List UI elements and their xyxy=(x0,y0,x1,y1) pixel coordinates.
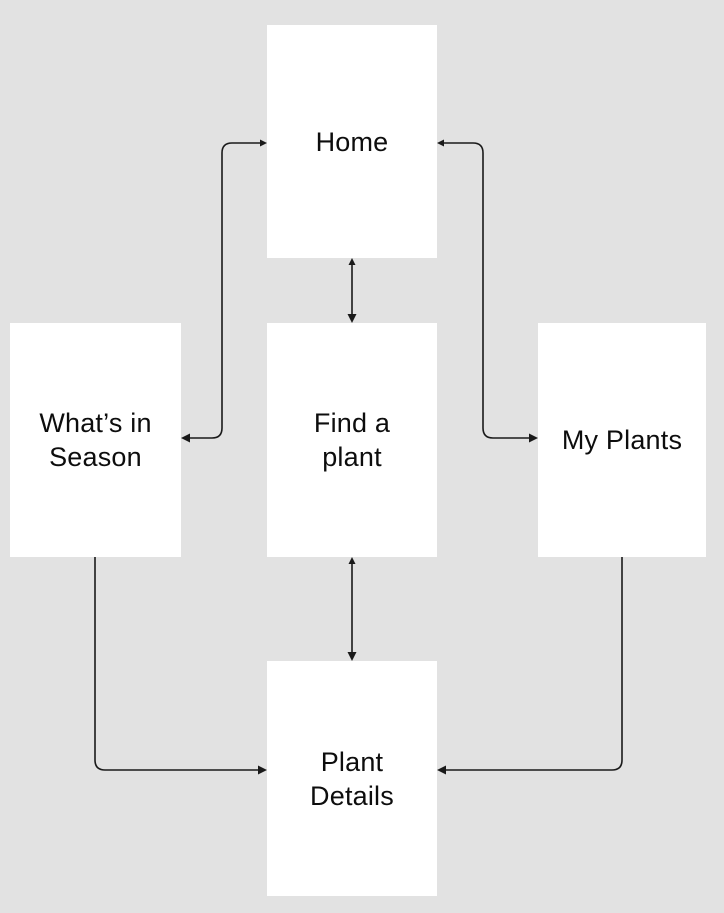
arrowhead-into-plant-details-left xyxy=(258,766,267,775)
node-my-plants-label: My Plants xyxy=(562,423,682,457)
arrowhead-into-home-left xyxy=(260,140,267,147)
node-find-a-plant-label: Find a plant xyxy=(314,406,390,474)
arrowhead-into-find-a-plant-bottom xyxy=(349,557,356,564)
arrowhead-into-my-plants xyxy=(529,434,538,443)
arrowhead-into-plant-details-right xyxy=(437,766,446,775)
edge-my-plants-plant-details xyxy=(444,557,622,770)
node-plant-details-label: Plant Details xyxy=(310,745,394,813)
arrowhead-into-home-right xyxy=(437,140,444,147)
edge-home-my-plants xyxy=(443,143,531,438)
node-whats-in-season: What’s in Season xyxy=(10,323,181,557)
node-plant-details: Plant Details xyxy=(267,661,437,896)
arrowhead-into-find-a-plant xyxy=(348,314,357,323)
node-find-a-plant: Find a plant xyxy=(267,323,437,557)
flowchart-canvas: Home What’s in Season Find a plant My Pl… xyxy=(0,0,724,913)
node-home-label: Home xyxy=(316,125,389,159)
node-whats-in-season-label: What’s in Season xyxy=(39,406,151,474)
edge-whats-in-season-plant-details xyxy=(95,557,260,770)
edge-home-whats-in-season xyxy=(188,143,261,438)
node-my-plants: My Plants xyxy=(538,323,706,557)
arrowhead-into-home-bottom xyxy=(349,258,356,265)
node-home: Home xyxy=(267,25,437,258)
arrowhead-into-whats-in-season xyxy=(181,434,190,443)
arrowhead-into-plant-details-top xyxy=(348,652,357,661)
